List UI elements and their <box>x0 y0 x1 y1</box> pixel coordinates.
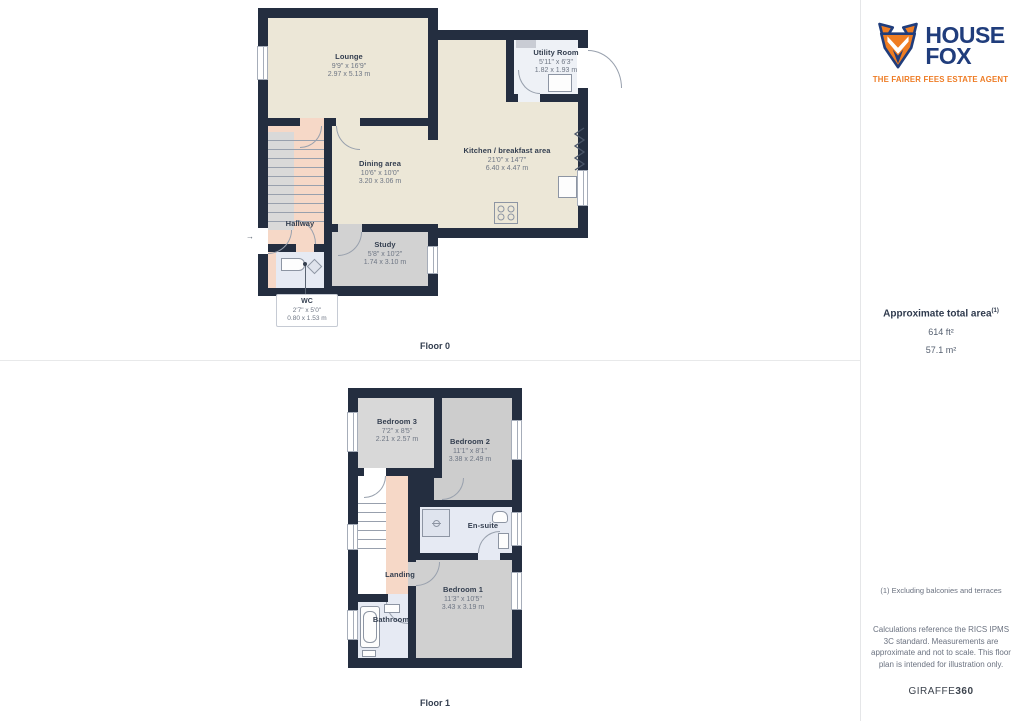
room-dim-imperial: 21'0" x 14'7" <box>463 157 550 164</box>
room-name: Bedroom 3 <box>376 417 418 426</box>
wc-callout: WC 2'7" x 5'0" 0.80 x 1.53 m <box>276 294 338 327</box>
brand-tagline: THE FAIRER FEES ESTATE AGENT <box>861 75 1020 84</box>
total-area-superscript: (1) <box>992 308 999 314</box>
room-label-utility: Utility Room 5'11" x 6'3" 1.82 x 1.93 m <box>533 48 578 74</box>
room-name: Landing <box>385 570 415 579</box>
room-label-study: Study 5'8" x 10'2" 1.74 x 3.10 m <box>364 240 406 266</box>
total-area-block: Approximate total area(1) 614 ft² 57.1 m… <box>861 308 1020 355</box>
room-label-ensuite: En-suite <box>468 521 498 530</box>
stairs-window <box>347 524 358 550</box>
floors-divider <box>0 360 860 361</box>
bathroom-toilet-icon <box>362 650 376 657</box>
room-dim-metric: 3.43 x 3.19 m <box>442 604 484 611</box>
room-name: Hallway <box>286 219 315 228</box>
bathroom-door-gap <box>388 594 408 602</box>
dining-door-gap <box>336 118 360 126</box>
wc-callout-dot <box>303 262 307 266</box>
room-dim-imperial: 2'7" x 5'0" <box>277 307 337 314</box>
kitchen-window <box>577 170 588 206</box>
brand-name: HOUSE FOX <box>925 25 1004 67</box>
bathroom-basin-icon <box>384 604 400 613</box>
room-dim-metric: 0.80 x 1.53 m <box>277 315 337 322</box>
room-label-lounge: Lounge 9'9" x 16'9" 2.97 x 5.13 m <box>328 52 370 78</box>
room-dim-imperial: 11'3" x 10'5" <box>442 596 484 603</box>
utility-bottom-wall <box>506 94 578 102</box>
room-name: Dining area <box>359 159 401 168</box>
ensuite-window <box>511 512 522 546</box>
wc-door-gap <box>296 244 314 252</box>
room-dim-imperial: 11'1" x 8'1" <box>449 448 491 455</box>
room-dim-imperial: 9'9" x 16'9" <box>328 63 370 70</box>
hob-icon <box>494 202 518 224</box>
room-dim-metric: 2.97 x 5.13 m <box>328 71 370 78</box>
shower-drain-icon <box>432 519 441 528</box>
total-area-imperial: 614 ft² <box>861 327 1020 337</box>
stairs-floor1 <box>358 495 386 553</box>
wc-callout-line <box>305 265 306 294</box>
ensuite-basin-icon <box>498 533 509 549</box>
brand-name-line2: FOX <box>925 46 1004 67</box>
room-name: Bedroom 2 <box>449 437 491 446</box>
room-dim-imperial: 10'6" x 10'0" <box>359 170 401 177</box>
bedroom3-door-gap <box>364 468 386 476</box>
room-dim-metric: 2.21 x 2.57 m <box>376 436 418 443</box>
room-name: Bathroom <box>373 615 409 624</box>
room-name: Lounge <box>328 52 370 61</box>
floor0-label: Floor 0 <box>420 341 450 351</box>
room-dim-metric: 6.40 x 4.47 m <box>463 165 550 172</box>
room-name: Kitchen / breakfast area <box>463 146 550 155</box>
radiator-icon <box>572 126 586 172</box>
room-label-bathroom: Bathroom <box>373 615 409 624</box>
utility-exterior-door-arc <box>588 50 622 88</box>
floor1-label: Floor 1 <box>420 698 450 708</box>
utility-door-gap <box>518 94 540 102</box>
disclaimer: Calculations reference the RICS IPMS 3C … <box>871 624 1011 670</box>
study-window <box>427 246 438 274</box>
bedroom3-window <box>347 412 358 452</box>
room-label-bedroom1: Bedroom 1 11'3" x 10'5" 3.43 x 3.19 m <box>442 585 484 611</box>
footnote: (1) Excluding balconies and terraces <box>861 586 1020 595</box>
room-label-kitchen: Kitchen / breakfast area 21'0" x 14'7" 6… <box>463 146 550 172</box>
room-dim-metric: 3.38 x 2.49 m <box>449 456 491 463</box>
room-name: En-suite <box>468 521 498 530</box>
lounge-window <box>257 46 268 80</box>
room-label-hallway: Hallway <box>286 219 315 228</box>
sidebar: HOUSE FOX THE FAIRER FEES ESTATE AGENT A… <box>860 0 1020 721</box>
room-dim-metric: 3.20 x 3.06 m <box>359 178 401 185</box>
room-label-landing: Landing <box>385 570 415 579</box>
room-name: Utility Room <box>533 48 578 57</box>
entrance-arrow-icon: → <box>246 232 254 241</box>
wc-toilet-icon <box>281 258 305 271</box>
provider-name: GIRAFFE <box>908 686 955 697</box>
front-door-gap <box>257 228 268 254</box>
fox-icon <box>876 22 920 70</box>
bathroom-window <box>347 610 358 640</box>
study-door-gap <box>338 224 362 232</box>
utility-left-wall <box>506 40 514 102</box>
total-area-title: Approximate total area(1) <box>861 308 1020 319</box>
room-dim-imperial: 7'2" x 8'5" <box>376 428 418 435</box>
room-dim-imperial: 5'11" x 6'3" <box>533 59 578 66</box>
brand-logo: HOUSE FOX <box>861 22 1020 70</box>
floorplan-page: → Lounge 9'9" x 16'9" 2.97 x 5.13 m Util… <box>0 0 1020 721</box>
bedroom1-window <box>511 572 522 610</box>
ensuite-door-gap <box>478 553 500 560</box>
stairs-floor0 <box>268 132 324 230</box>
bedroom2-window <box>511 420 522 460</box>
dining-kitchen-opening <box>428 140 438 224</box>
total-area-metric: 57.1 m² <box>861 345 1020 355</box>
bedroom2-door-gap <box>434 478 442 500</box>
kitchen-sink-icon <box>558 176 577 198</box>
total-area-title-text: Approximate total area <box>883 308 991 319</box>
room-name: Bedroom 1 <box>442 585 484 594</box>
room-label-bedroom3: Bedroom 3 7'2" x 8'5" 2.21 x 2.57 m <box>376 417 418 443</box>
room-label-bedroom2: Bedroom 2 11'1" x 8'1" 3.38 x 2.49 m <box>449 437 491 463</box>
room-dim-metric: 1.74 x 3.10 m <box>364 259 406 266</box>
room-dim-imperial: 5'8" x 10'2" <box>364 251 406 258</box>
room-name: Study <box>364 240 406 249</box>
utility-counter <box>516 40 536 48</box>
room-label-dining: Dining area 10'6" x 10'0" 3.20 x 3.06 m <box>359 159 401 185</box>
provider-360: 360 <box>955 686 973 697</box>
hallway-door-gap <box>300 118 324 126</box>
provider-logo: GIRAFFE360 <box>861 686 1020 697</box>
room-dim-metric: 1.82 x 1.93 m <box>533 67 578 74</box>
utility-sink-icon <box>548 74 572 92</box>
room-name: WC <box>277 298 337 305</box>
